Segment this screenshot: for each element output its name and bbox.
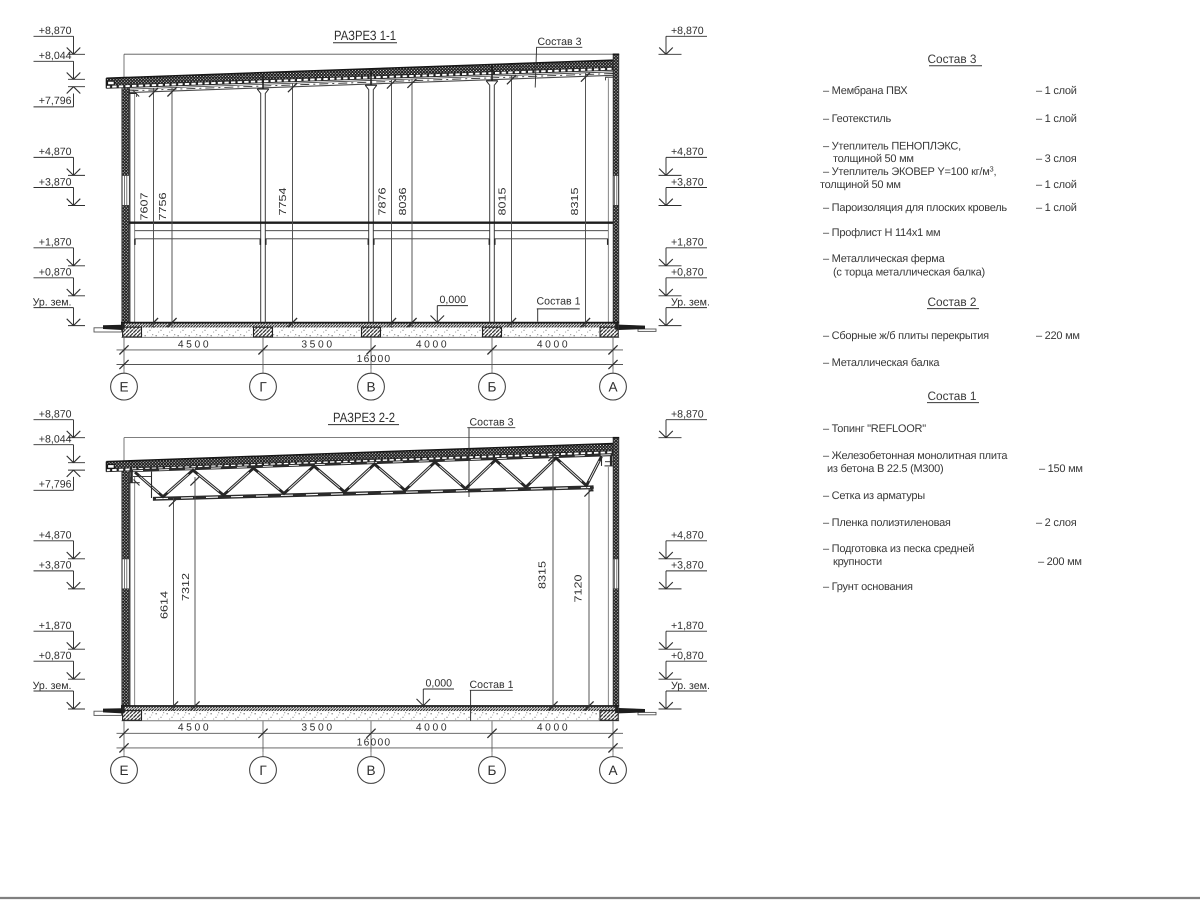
svg-text:+0,870: +0,870 — [39, 650, 72, 662]
svg-text:4000: 4000 — [416, 339, 449, 350]
svg-text:– 1 слой: – 1 слой — [1036, 85, 1077, 97]
svg-text:– Мембрана ПВХ: – Мембрана ПВХ — [823, 85, 908, 97]
svg-text:4000: 4000 — [537, 339, 570, 350]
svg-text:– Пленка полиэтиленовая: – Пленка полиэтиленовая — [823, 517, 951, 529]
svg-text:3500: 3500 — [301, 723, 334, 734]
svg-text:+8,870: +8,870 — [39, 25, 72, 37]
svg-text:7607: 7607 — [140, 192, 151, 220]
svg-text:4500: 4500 — [178, 723, 211, 734]
svg-text:– Металлическая ферма: – Металлическая ферма — [823, 253, 946, 265]
svg-text:+7,796: +7,796 — [39, 479, 72, 491]
svg-text:+8,870: +8,870 — [671, 25, 704, 37]
svg-text:– Сетка из арматуры: – Сетка из арматуры — [823, 490, 925, 502]
svg-text:+3,870: +3,870 — [671, 176, 704, 188]
svg-text:+1,870: +1,870 — [39, 237, 72, 249]
svg-text:Ур. зем.: Ур. зем. — [671, 296, 710, 308]
svg-text:+8,044: +8,044 — [39, 434, 72, 446]
svg-text:В: В — [366, 379, 375, 394]
svg-text:+7,796: +7,796 — [39, 95, 72, 107]
svg-text:– Железобетонная монолитная п: – Железобетонная монолитная плита — [823, 450, 1008, 462]
svg-text:0,000: 0,000 — [426, 678, 453, 690]
svg-text:(с торца металлическая балка): (с торца металлическая балка) — [833, 267, 985, 279]
svg-text:+4,870: +4,870 — [39, 530, 72, 542]
svg-text:8315: 8315 — [538, 561, 549, 589]
svg-text:+8,870: +8,870 — [39, 409, 72, 421]
svg-text:толщиной 50 мм: толщиной 50 мм — [820, 179, 901, 191]
svg-text:7312: 7312 — [181, 573, 192, 601]
svg-text:Состав 3: Состав 3 — [538, 36, 582, 48]
svg-text:8315: 8315 — [570, 187, 581, 215]
svg-text:+4,870: +4,870 — [39, 146, 72, 158]
svg-text:Состав 1: Состав 1 — [928, 389, 977, 403]
svg-text:7754: 7754 — [278, 187, 289, 215]
svg-text:+3,870: +3,870 — [671, 560, 704, 572]
svg-text:А: А — [608, 763, 618, 778]
svg-text:РАЗРЕЗ 2-2: РАЗРЕЗ 2-2 — [333, 410, 395, 425]
svg-text:– Пароизоляция для плоских кро: – Пароизоляция для плоских кровель — [823, 202, 1007, 214]
svg-text:Е: Е — [119, 379, 128, 394]
svg-text:+8,044: +8,044 — [39, 50, 72, 62]
svg-text:Состав 2: Состав 2 — [928, 295, 977, 309]
svg-text:– 1 слой: – 1 слой — [1036, 113, 1077, 125]
svg-text:4000: 4000 — [416, 723, 449, 734]
svg-text:0,000: 0,000 — [440, 294, 467, 306]
svg-text:7756: 7756 — [158, 192, 169, 220]
svg-text:+8,870: +8,870 — [671, 409, 704, 421]
svg-text:– 200 мм: – 200 мм — [1038, 556, 1082, 568]
svg-text:толщиной 50 мм: толщиной 50 мм — [833, 153, 914, 165]
svg-text:Ур. зем.: Ур. зем. — [671, 680, 710, 692]
svg-text:8036: 8036 — [398, 187, 409, 215]
svg-text:Г: Г — [259, 379, 267, 394]
svg-text:– 1 слой: – 1 слой — [1036, 179, 1077, 191]
svg-text:– Металлическая балка: – Металлическая балка — [823, 357, 940, 369]
svg-text:+1,870: +1,870 — [671, 620, 704, 632]
svg-text:– 3 слоя: – 3 слоя — [1036, 153, 1077, 165]
svg-text:4500: 4500 — [178, 339, 211, 350]
svg-text:– Грунт основания: – Грунт основания — [823, 581, 913, 593]
svg-text:– Сборные ж/б плиты перекрытия: – Сборные ж/б плиты перекрытия — [823, 330, 989, 342]
svg-text:4000: 4000 — [537, 723, 570, 734]
svg-text:– Топинг "REFLOOR": – Топинг "REFLOOR" — [823, 423, 926, 435]
svg-text:– Геотекстиль: – Геотекстиль — [823, 113, 891, 125]
svg-text:Состав 3: Состав 3 — [928, 52, 977, 66]
svg-text:– Профлист Н 114х1 мм: – Профлист Н 114х1 мм — [823, 227, 940, 239]
svg-text:Г: Г — [259, 763, 267, 778]
svg-text:6614: 6614 — [160, 591, 171, 619]
svg-text:– Утеплитель ПЕНОПЛЭКС,: – Утеплитель ПЕНОПЛЭКС, — [823, 141, 961, 153]
svg-text:Состав 3: Состав 3 — [470, 416, 514, 428]
svg-text:7876: 7876 — [378, 187, 389, 215]
svg-text:– Подготовка из песка средней: – Подготовка из песка средней — [823, 543, 974, 555]
svg-text:8015: 8015 — [498, 187, 509, 215]
svg-text:+0,870: +0,870 — [671, 650, 704, 662]
svg-text:Состав 1: Состав 1 — [470, 679, 514, 691]
svg-text:+0,870: +0,870 — [671, 267, 704, 279]
svg-text:– 220 мм: – 220 мм — [1036, 330, 1080, 342]
svg-text:3500: 3500 — [301, 339, 334, 350]
svg-text:– Утеплитель ЭКОВЕР Y=100 кг/м: – Утеплитель ЭКОВЕР Y=100 кг/м3, — [823, 165, 996, 179]
svg-text:Б: Б — [488, 379, 497, 394]
svg-text:А: А — [608, 379, 618, 394]
svg-text:из бетона В 22.5 (М300): из бетона В 22.5 (М300) — [827, 463, 943, 475]
svg-text:16000: 16000 — [357, 737, 392, 748]
svg-text:Состав 1: Состав 1 — [537, 296, 581, 308]
svg-text:Ур. зем.: Ур. зем. — [33, 296, 72, 308]
svg-text:+3,870: +3,870 — [39, 176, 72, 188]
svg-text:В: В — [366, 763, 375, 778]
svg-text:крупности: крупности — [833, 556, 882, 568]
svg-text:РАЗРЕЗ 1-1: РАЗРЕЗ 1-1 — [334, 28, 396, 43]
svg-text:7120: 7120 — [574, 574, 585, 602]
svg-text:+4,870: +4,870 — [671, 530, 704, 542]
svg-text:+1,870: +1,870 — [39, 620, 72, 632]
svg-text:+4,870: +4,870 — [671, 146, 704, 158]
svg-text:Б: Б — [488, 763, 497, 778]
svg-text:Ур. зем.: Ур. зем. — [33, 680, 72, 692]
svg-text:– 150 мм: – 150 мм — [1039, 463, 1083, 475]
svg-text:16000: 16000 — [357, 354, 392, 365]
svg-text:+1,870: +1,870 — [671, 237, 704, 249]
svg-text:– 1 слой: – 1 слой — [1036, 202, 1077, 214]
svg-text:Е: Е — [119, 763, 128, 778]
svg-text:– 2 слоя: – 2 слоя — [1036, 517, 1077, 529]
svg-text:+0,870: +0,870 — [39, 267, 72, 279]
svg-text:+3,870: +3,870 — [39, 560, 72, 572]
